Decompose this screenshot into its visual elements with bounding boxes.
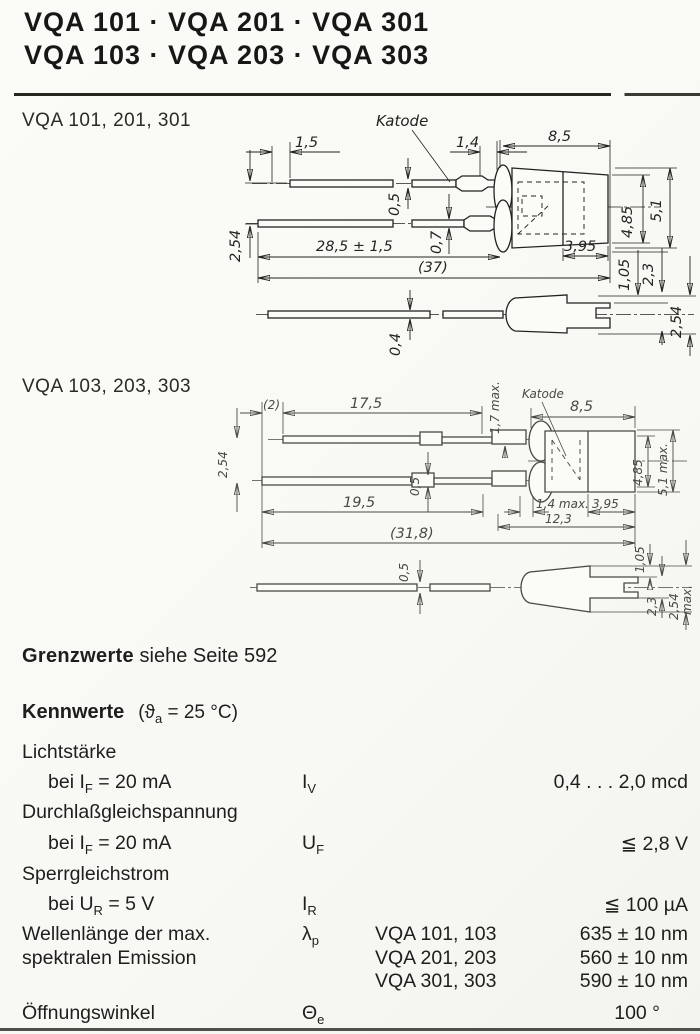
led-package-body — [529, 421, 635, 502]
value: 635 ± 10 nm — [580, 923, 688, 946]
dim-label: 0,7 — [429, 230, 445, 254]
anode-lead — [258, 216, 502, 231]
dim-label: 19,5 — [343, 495, 375, 511]
katode-label: Katode — [522, 387, 564, 401]
dim-label: 4,85 — [631, 459, 645, 486]
dim-label: 1,4 — [456, 135, 479, 151]
dim-label: 12,3 — [545, 512, 572, 526]
dim-label: 0,5 — [387, 193, 403, 216]
dim-label: (2) — [263, 398, 280, 412]
symbol: λp — [302, 923, 319, 946]
table-row-durchlassspannung: Durchlaßgleichspannung — [22, 801, 690, 827]
value: 100 ° — [614, 1002, 660, 1025]
dim-label: 0,4 — [388, 333, 404, 356]
dim-label: 3,95 — [564, 239, 596, 255]
value: 0,4 . . . 2,0 mcd — [554, 771, 688, 794]
table-row-durchlassspannung-condition: bei IF = 20 mA UF ≦ 2,8 V — [22, 832, 690, 858]
grenzwerte-note: Grenzwerte siehe Seite 592 — [22, 645, 277, 668]
katode-label: Katode — [376, 112, 428, 130]
type-variant: VQA 201, 203 — [375, 947, 496, 970]
symbol: Θe — [302, 1002, 324, 1025]
dim-label: 17,5 — [350, 396, 382, 412]
test-condition: bei UR = 5 V — [48, 893, 154, 916]
dim-label: 8,5 — [570, 399, 593, 415]
dim-label: max. — [680, 585, 694, 615]
dim-label: 0,5 — [397, 563, 411, 582]
parameter-name: Öffnungswinkel — [22, 1002, 155, 1025]
type-variant: VQA 301, 303 — [375, 970, 496, 993]
table-row-wellenlaenge-1: Wellenlänge der max. λp VQA 101, 103 635… — [22, 923, 690, 949]
table-row-wellenlaenge-3: VQA 301, 303 590 ± 10 nm — [22, 970, 690, 996]
kennwerte-heading: Kennwerte(ϑa = 25 °C) — [22, 701, 238, 724]
dim-label: 2,54 — [228, 230, 244, 262]
value: 560 ± 10 nm — [580, 947, 688, 970]
ambient-condition: (ϑa = 25 °C) — [138, 702, 238, 723]
dim-label: (37) — [418, 260, 448, 276]
technical-drawing-vqa-101: 2,54 1,5 Katode 1,4 8,5 4,85 5,1 — [0, 0, 700, 370]
dim-label: 1,4 max. — [536, 497, 589, 511]
dim-label: 1,05 — [633, 546, 647, 573]
dim-label: 1,05 — [617, 259, 633, 291]
test-condition: bei IF = 20 mA — [48, 771, 171, 794]
dim-label: 1,5 — [295, 135, 318, 151]
dim-label: 4,85 — [620, 206, 636, 238]
symbol: UF — [302, 832, 324, 855]
test-condition: bei IF = 20 mA — [48, 832, 171, 855]
grenzwerte-label: Grenzwerte — [22, 645, 134, 667]
parameter-name: Sperrgleichstrom — [22, 863, 169, 886]
dim-label: 5,1 — [649, 199, 665, 222]
dim-label: 1,7 max. — [488, 381, 502, 434]
anode-lead — [262, 471, 526, 487]
parameter-name: Wellenlänge der max. — [22, 923, 210, 946]
type-variant: VQA 101, 103 — [375, 923, 496, 946]
parameter-name: Lichtstärke — [22, 741, 116, 764]
dim-label: 28,5 ± 1,5 — [316, 239, 393, 255]
table-row-lichtstaerke-condition: bei IF = 20 mA IV 0,4 . . . 2,0 mcd — [22, 771, 690, 797]
technical-drawing-vqa-103: (2) 17,5 1,7 max. Katode 8,5 4,85 5,1 ma… — [0, 370, 700, 630]
dim-label: 2,3 — [645, 597, 659, 616]
dim-label: 2,3 — [641, 263, 657, 286]
datasheet-page: VQA 101 · VQA 201 · VQA 301 VQA 103 · VQ… — [0, 0, 700, 1034]
table-row-sperrstrom: Sperrgleichstrom — [22, 863, 690, 889]
table-row-sperrstrom-condition: bei UR = 5 V IR ≦ 100 µA — [22, 893, 690, 919]
table-row-lichtstaerke: Lichtstärke — [22, 741, 690, 767]
symbol: IV — [302, 771, 316, 794]
dim-label: 5,1 max. — [656, 443, 670, 496]
dim-label: 8,5 — [548, 129, 571, 145]
dim-label: (31,8) — [390, 526, 434, 542]
side-view — [268, 295, 610, 333]
footer-divider — [0, 1028, 700, 1031]
kathode-lead — [290, 176, 497, 191]
value: ≦ 2,8 V — [621, 832, 688, 856]
dim-label: 2,54 — [667, 593, 681, 620]
dim-label: 2,54 — [669, 306, 685, 338]
value: ≦ 100 µA — [604, 893, 688, 917]
parameter-name: spektralen Emission — [22, 947, 197, 970]
side-view — [257, 566, 638, 612]
table-row-oeffnungswinkel: Öffnungswinkel Θe 100 ° — [22, 1002, 690, 1028]
dim-label: 3,95 — [592, 497, 619, 511]
dim-label: 2,54 — [216, 451, 230, 478]
value: 590 ± 10 nm — [580, 970, 688, 993]
parameter-name: Durchlaßgleichspannung — [22, 801, 238, 824]
symbol: IR — [302, 893, 317, 916]
grenzwerte-text: siehe Seite 592 — [140, 645, 278, 667]
dim-label: 0,5 — [408, 477, 422, 496]
